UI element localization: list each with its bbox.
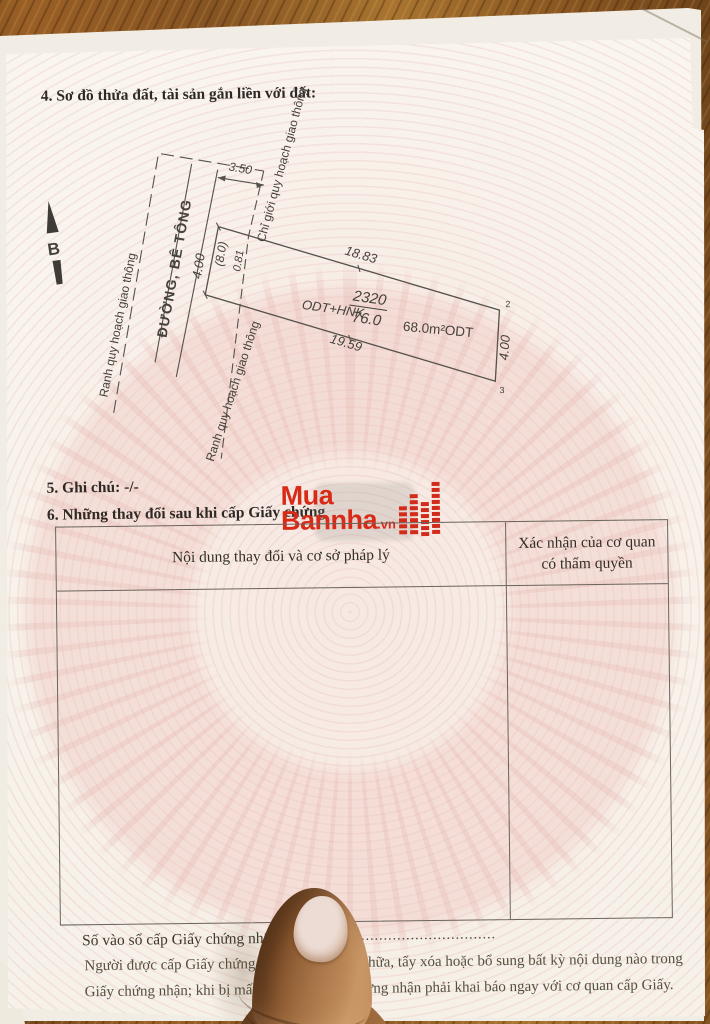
north-label: B bbox=[46, 239, 61, 260]
label-ranh-bottom: Ranh quy hoạch giao thông bbox=[203, 319, 262, 463]
section5-title: 5. Ghi chú: -/- bbox=[46, 479, 138, 498]
parcel-fraction: 2320 76.0 bbox=[347, 287, 390, 330]
dim-400-right: 4.00 bbox=[496, 334, 513, 361]
point-2: 2 bbox=[505, 299, 510, 309]
dim-1883: 18.83 bbox=[343, 243, 379, 267]
certificate-content: 4. Sơ đồ thửa đất, tài sản gắn liền với … bbox=[0, 0, 710, 1024]
changes-table: Nội dung thay đổi và cơ sở pháp lý Xác n… bbox=[55, 519, 673, 925]
photo-of-certificate: 4. Sơ đồ thửa đất, tài sản gắn liền với … bbox=[0, 0, 710, 1024]
table-col2-header: Xác nhận của cơ quan có thẩm quyền bbox=[506, 520, 668, 585]
dim-80: (8.0) bbox=[212, 241, 230, 268]
svg-text:76.0: 76.0 bbox=[351, 309, 383, 330]
dim-1959: 19.59 bbox=[328, 331, 363, 355]
plot-diagram: B Ranh quy hoạch giao thông Chỉ giới quy… bbox=[25, 82, 590, 509]
table-col2-header-line2: có thẩm quyền bbox=[541, 552, 633, 574]
label-chi-gioi: Chỉ giới quy hoạch giao thông bbox=[254, 86, 310, 243]
label-ranh-left: Ranh quy hoạch giao thông bbox=[96, 252, 138, 399]
table-col1-header: Nội dung thay đổi và cơ sở pháp lý bbox=[56, 522, 506, 590]
finger bbox=[222, 884, 417, 1024]
dim-350: 3.50 bbox=[228, 160, 254, 178]
dim-400-left: 4.00 bbox=[189, 252, 208, 280]
point-3: 3 bbox=[499, 385, 504, 395]
parcel-area-odt: 68.0m²ODT bbox=[402, 319, 474, 340]
table-col2-header-line1: Xác nhận của cơ quan bbox=[518, 531, 656, 554]
